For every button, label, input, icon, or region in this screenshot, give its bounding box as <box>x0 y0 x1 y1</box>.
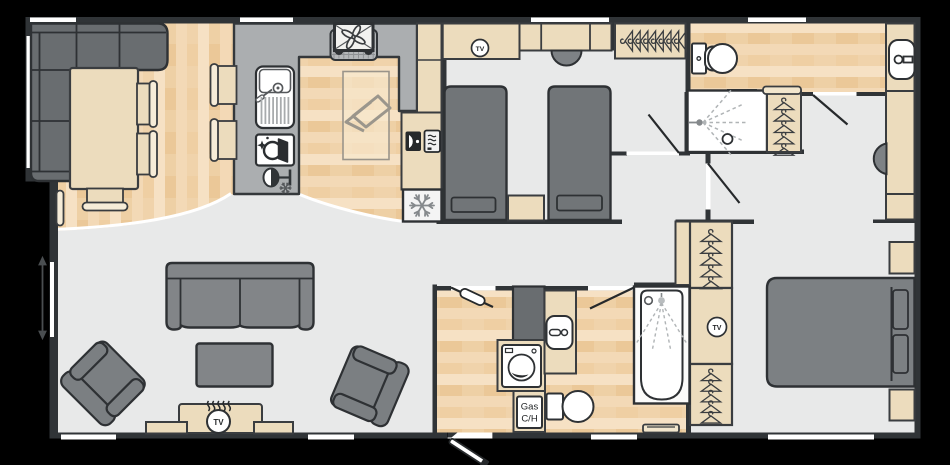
svg-text:TV: TV <box>713 325 722 332</box>
svg-text:Gas: Gas <box>521 402 539 413</box>
svg-text:C/H: C/H <box>521 414 538 425</box>
svg-text:TV: TV <box>213 418 224 427</box>
svg-text:TV: TV <box>476 46 485 53</box>
